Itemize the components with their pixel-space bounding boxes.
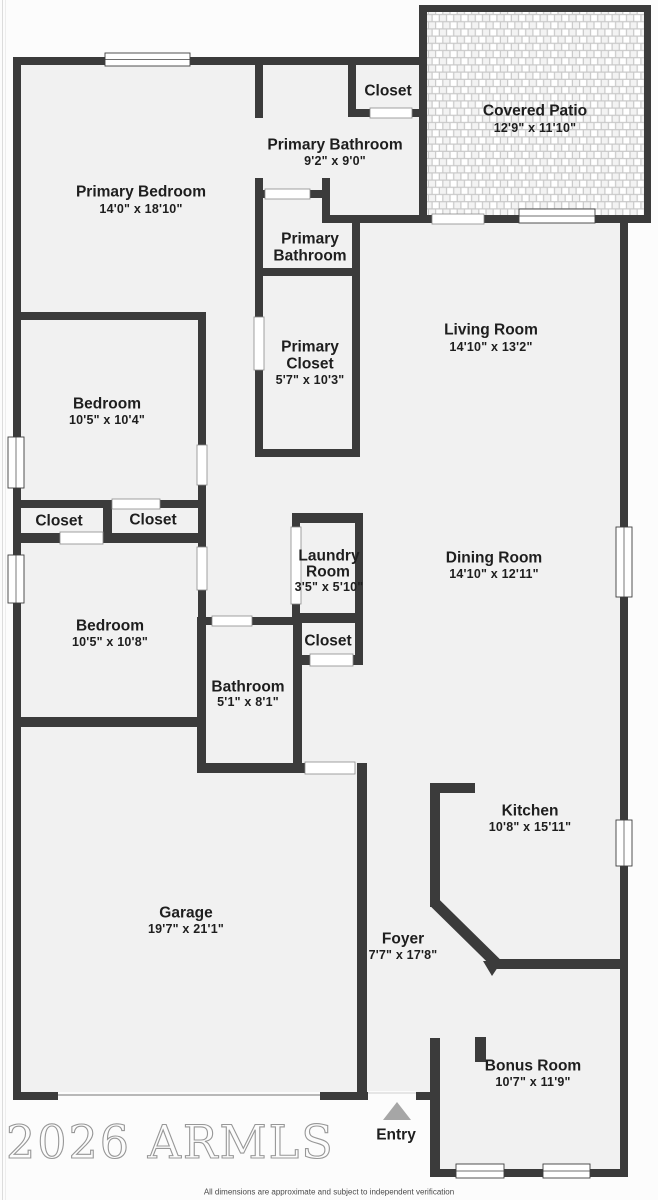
window-bonus-1 <box>456 1164 504 1178</box>
window-bonus-2 <box>543 1164 590 1178</box>
entry-arrow-icon <box>383 1102 411 1120</box>
floor-plan-canvas: 2026 ARMLS <box>0 0 658 1200</box>
window-bedroom-1 <box>8 437 24 488</box>
window-patio-slider <box>519 209 595 223</box>
garage-door <box>58 1092 320 1100</box>
window-bedroom-2 <box>8 555 24 603</box>
page-edge-line-1 <box>2 0 3 1200</box>
floor-fills <box>17 12 645 1175</box>
floor-plan: 2026 ARMLS Covered Patio 12'9" x 11'10" … <box>0 0 658 1200</box>
page-edge-line-2 <box>5 0 6 1200</box>
disclaimer-text: All dimensions are approximate and subje… <box>204 1188 454 1197</box>
watermark-text: 2026 ARMLS <box>6 1115 335 1169</box>
window-dining <box>616 527 632 597</box>
patio-floor <box>424 12 645 216</box>
entry-opening <box>368 1091 416 1101</box>
window-primary-bedroom <box>105 53 190 66</box>
window-kitchen <box>616 820 632 866</box>
